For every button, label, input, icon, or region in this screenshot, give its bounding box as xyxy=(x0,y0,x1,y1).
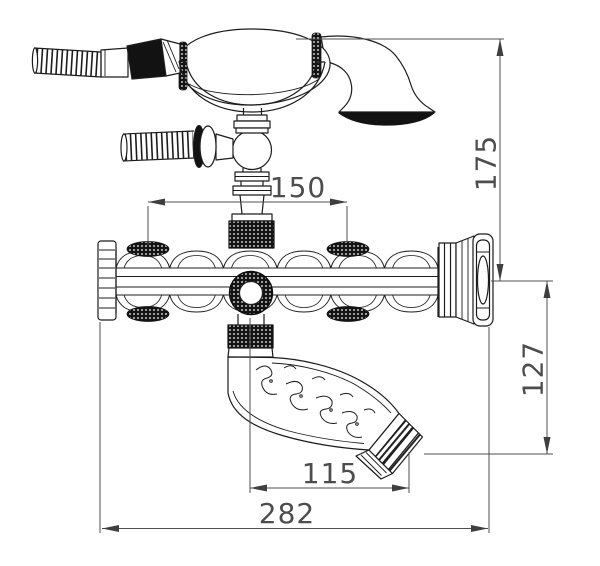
dim-label-175: 175 xyxy=(470,135,503,191)
valve-body xyxy=(98,234,493,326)
riser-knurl-nut xyxy=(229,221,274,248)
riser-pipe xyxy=(121,108,274,248)
control-knob xyxy=(230,272,273,315)
hose-grip xyxy=(101,39,180,79)
technical-drawing-canvas: 150 175 127 115 282 xyxy=(0,0,600,566)
arrowhead xyxy=(497,264,504,281)
arrowhead xyxy=(392,485,409,492)
dim-label-282: 282 xyxy=(259,497,315,530)
arrowhead xyxy=(148,199,165,206)
arrowhead xyxy=(544,437,551,454)
dim-label-115: 115 xyxy=(302,457,358,490)
handle-knurl-band-right xyxy=(312,33,321,78)
tub-spout xyxy=(228,314,423,479)
dim-label-150: 150 xyxy=(270,171,326,204)
hand-shower-head xyxy=(321,36,435,125)
arrowhead xyxy=(544,281,551,298)
spray-face xyxy=(339,113,434,125)
grip-black xyxy=(127,39,166,79)
arrowhead xyxy=(250,485,267,492)
scroll-ornament xyxy=(327,242,369,257)
scroll-ornament xyxy=(327,307,369,322)
shower-hose xyxy=(32,48,101,77)
inlet-hose xyxy=(121,131,194,161)
scroll-ornament xyxy=(127,307,169,322)
arrowhead xyxy=(102,525,119,532)
arrowhead xyxy=(497,39,504,56)
faucet-technical-drawing: 150 175 127 115 282 xyxy=(0,0,600,566)
dim-label-127: 127 xyxy=(517,341,550,397)
arrowhead xyxy=(330,199,347,206)
arrowhead xyxy=(471,525,488,532)
